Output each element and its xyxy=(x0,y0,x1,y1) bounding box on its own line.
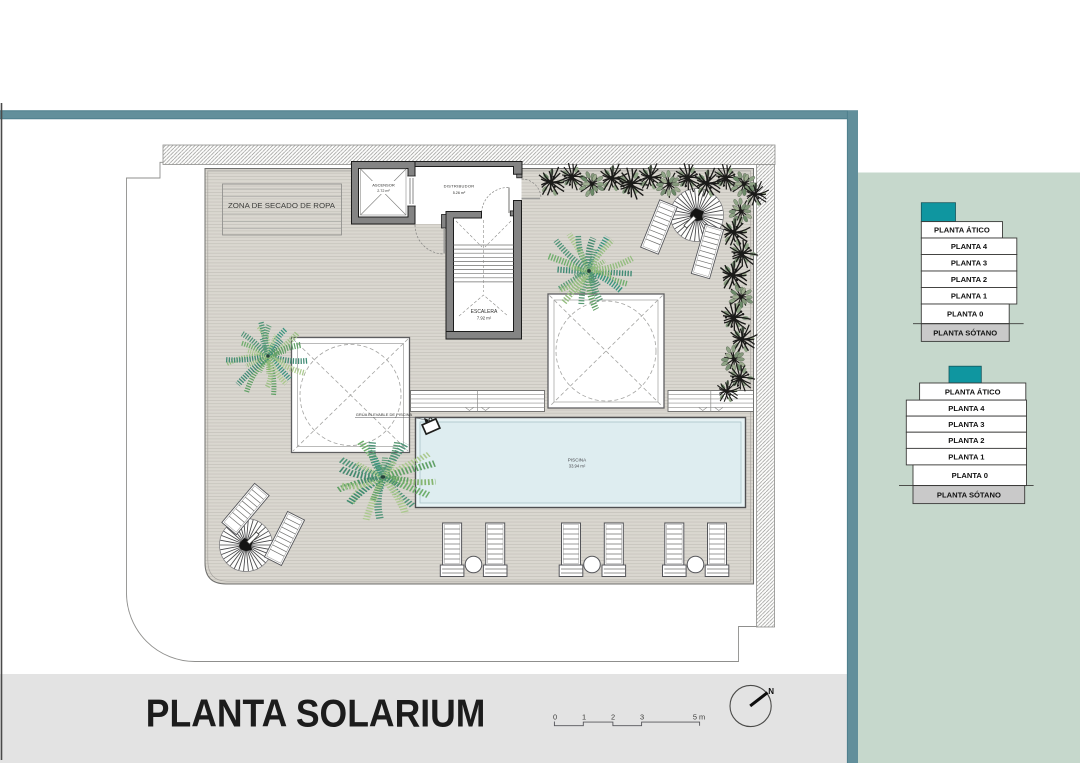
svg-text:DISTRIBUDOR: DISTRIBUDOR xyxy=(444,184,475,189)
svg-text:GRÚA ELEVABLE DE PISCINA: GRÚA ELEVABLE DE PISCINA xyxy=(356,412,413,417)
svg-text:33.94 m²: 33.94 m² xyxy=(569,464,586,469)
svg-text:PLANTA SÓTANO: PLANTA SÓTANO xyxy=(937,490,1001,499)
svg-text:PLANTA 2: PLANTA 2 xyxy=(951,275,987,284)
svg-text:PLANTA 0: PLANTA 0 xyxy=(947,310,983,319)
svg-text:PLANTA 0: PLANTA 0 xyxy=(952,471,988,480)
svg-text:N: N xyxy=(768,687,774,696)
svg-text:2: 2 xyxy=(611,713,615,722)
svg-text:1: 1 xyxy=(582,713,586,722)
svg-text:ZONA DE SECADO DE ROPA: ZONA DE SECADO DE ROPA xyxy=(228,201,336,210)
svg-text:PLANTA 3: PLANTA 3 xyxy=(948,420,984,429)
svg-text:PLANTA ÁTICO: PLANTA ÁTICO xyxy=(934,226,990,235)
svg-text:PLANTA 3: PLANTA 3 xyxy=(951,259,987,268)
svg-text:PLANTA 4: PLANTA 4 xyxy=(948,404,985,413)
svg-text:PLANTA 2: PLANTA 2 xyxy=(948,436,984,445)
svg-text:3: 3 xyxy=(640,713,644,722)
svg-text:ESCALERA: ESCALERA xyxy=(471,309,498,315)
svg-text:PLANTA ÁTICO: PLANTA ÁTICO xyxy=(945,387,1001,396)
svg-text:7.92 m²: 7.92 m² xyxy=(477,316,492,321)
svg-text:PLANTA 4: PLANTA 4 xyxy=(951,242,988,251)
svg-text:PISCINA: PISCINA xyxy=(568,458,587,463)
svg-text:5 m: 5 m xyxy=(693,713,705,722)
svg-text:PLANTA SOLARIUM: PLANTA SOLARIUM xyxy=(146,693,486,736)
svg-text:0: 0 xyxy=(553,713,557,722)
svg-text:PLANTA 1: PLANTA 1 xyxy=(951,292,988,301)
svg-text:PLANTA 1: PLANTA 1 xyxy=(948,452,985,461)
svg-text:5.26 m²: 5.26 m² xyxy=(453,191,466,195)
svg-text:2.72 m²: 2.72 m² xyxy=(377,189,390,193)
svg-text:ASCENSOR: ASCENSOR xyxy=(372,183,395,188)
svg-text:PLANTA SÓTANO: PLANTA SÓTANO xyxy=(933,328,997,337)
